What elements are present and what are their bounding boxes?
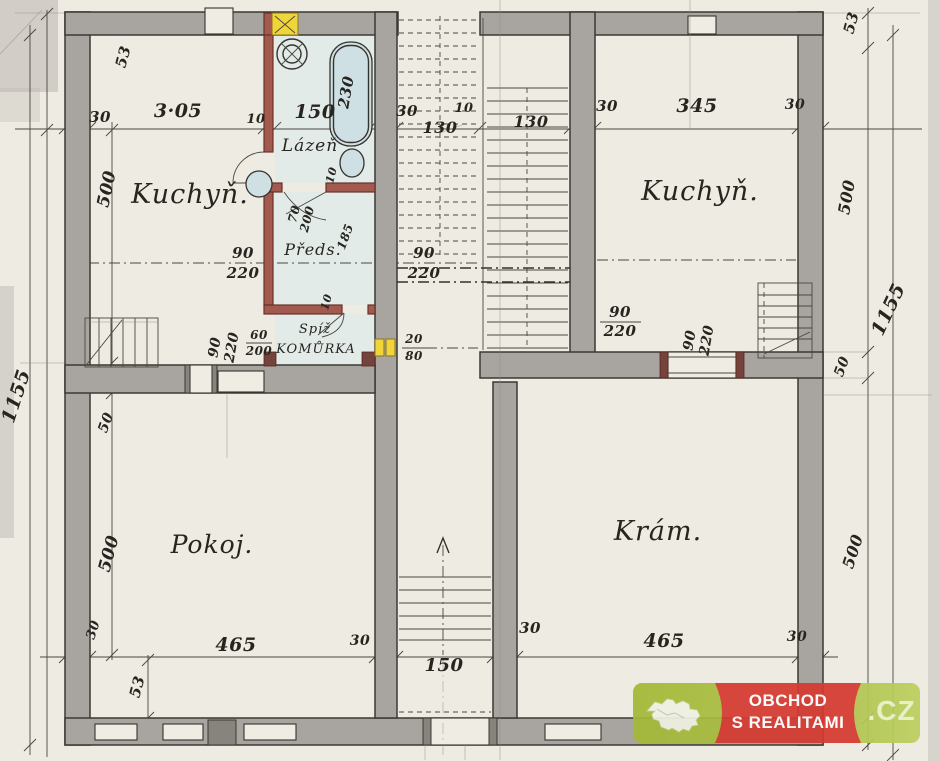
- window-bottom-4: [545, 724, 601, 740]
- wall-top-right: [480, 12, 823, 35]
- dimension-label: 30: [787, 629, 807, 645]
- dimension-label: 90: [232, 244, 254, 262]
- dimension-label: 30: [785, 97, 805, 113]
- dimension-label: 220: [221, 331, 242, 365]
- floor-plan-drawing: 303·051015030101301303034530535353500115…: [0, 0, 939, 761]
- room-label-kram: Krám.: [613, 516, 702, 547]
- bottom-pier: [208, 720, 236, 745]
- wall-stair-left: [375, 12, 397, 718]
- wall-stair-right: [570, 12, 595, 362]
- dimension-label: 30: [596, 97, 618, 115]
- sink-icon: [246, 171, 272, 197]
- dimension-label: 30: [519, 619, 541, 637]
- wall-kram-left: [493, 382, 517, 718]
- entry-opening: [430, 718, 490, 745]
- room-label-kuchyn-right: Kuchyň.: [640, 176, 759, 207]
- logo-tld: .CZ: [863, 695, 920, 727]
- chimney-flue-komurka-1: [375, 339, 384, 356]
- dimension-label: 345: [676, 95, 717, 117]
- czech-map-icon: [647, 699, 700, 732]
- room-label-preds: Předs.: [283, 240, 341, 259]
- dimension-label: 465: [643, 630, 684, 652]
- floor-plan-scan: 303·051015030101301303034530535353500115…: [0, 0, 939, 761]
- chimney-flue-komurka-2: [386, 339, 395, 356]
- window-top-right: [688, 16, 716, 34]
- staircase-corner-left: [85, 318, 158, 367]
- dimension-label: 53: [126, 674, 149, 700]
- dimension-label: 80: [405, 349, 423, 363]
- dimension-label: 220: [226, 264, 260, 282]
- dimension-label: 150: [294, 101, 335, 123]
- logo-text-line2: S REALITAMI: [715, 714, 861, 731]
- dimension-label: 90: [609, 303, 631, 321]
- dimension-label: 220: [407, 264, 441, 282]
- window-top-left: [205, 8, 233, 34]
- dimension-label: 130: [514, 112, 549, 131]
- room-label-pokoj: Pokoj.: [170, 530, 254, 559]
- dimension-label: 30: [89, 108, 111, 126]
- dimension-label: 500: [93, 169, 120, 209]
- dimension-label: 30: [396, 102, 418, 120]
- dimension-label: 465: [215, 634, 256, 656]
- wall-mid-right: [480, 352, 823, 378]
- dimension-label: 60: [250, 328, 268, 342]
- dimension-label: 150: [424, 655, 463, 676]
- window-bottom-3: [244, 724, 296, 740]
- partition-kitchen-bath: [264, 35, 273, 152]
- staircase-main: [397, 16, 570, 350]
- dimension-label: 130: [423, 118, 458, 137]
- dimension-label: 50: [831, 354, 853, 379]
- toilet-icon: [340, 149, 364, 177]
- dimension-label: 90: [413, 244, 435, 262]
- dimension-label: 200: [245, 344, 273, 358]
- dimension-label: 10: [246, 112, 265, 127]
- dimension-label: 50: [95, 410, 117, 435]
- dimension-label: 500: [838, 532, 867, 571]
- dimension-label: 500: [95, 533, 124, 574]
- dimension-label: 30: [350, 633, 370, 649]
- room-label-kuchyn-left: Kuchyň.: [130, 179, 249, 210]
- dimension-label: 10: [454, 101, 473, 116]
- partition-hall-left: [264, 192, 273, 305]
- room-label-komurka: KOMŮRKA: [275, 341, 356, 357]
- door-opening-pokoj: [190, 365, 212, 393]
- dimension-label: 20: [404, 332, 423, 346]
- dimension-label: 220: [603, 322, 637, 340]
- dimension-label: 3·05: [154, 100, 202, 122]
- window-bottom-2: [163, 724, 203, 740]
- logo-text-line1: OBCHOD: [715, 692, 861, 709]
- dimension-label: 1155: [867, 280, 910, 339]
- room-label-lazen: Lázeň: [281, 136, 338, 156]
- dimension-label: 500: [834, 178, 859, 216]
- window-bottom-1: [95, 724, 137, 740]
- dimension-label: 53: [112, 44, 135, 70]
- realty-watermark-logo: OBCHOD S REALITAMI .CZ: [633, 683, 920, 743]
- dimension-label: 53: [840, 10, 863, 36]
- room-label-spiz: Spíž: [299, 322, 331, 337]
- chimney-niche: [218, 371, 264, 392]
